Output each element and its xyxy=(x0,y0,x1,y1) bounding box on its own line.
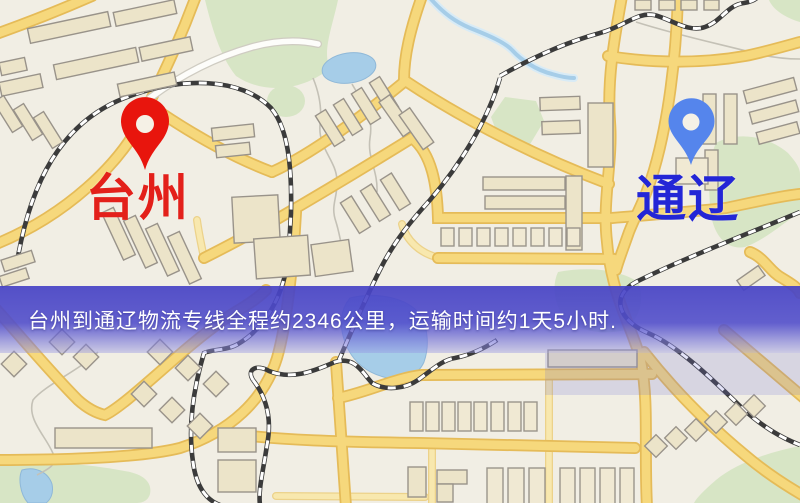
origin-pin-hole xyxy=(136,115,154,133)
route-info-text: 台州到通辽物流专线全程约2346公里，运输时间约1天5小时. xyxy=(0,305,617,335)
map-image xyxy=(0,0,800,503)
destination-city-label: 通辽 xyxy=(636,173,740,226)
route-info-banner: 台州到通辽物流专线全程约2346公里，运输时间约1天5小时. xyxy=(0,286,800,353)
logistics-route-map: 台州 通辽 台州到通辽物流专线全程约2346公里，运输时间约1天5小时. xyxy=(0,0,800,503)
origin-city-label: 台州 xyxy=(86,172,190,225)
destination-pin-hole xyxy=(683,114,700,131)
